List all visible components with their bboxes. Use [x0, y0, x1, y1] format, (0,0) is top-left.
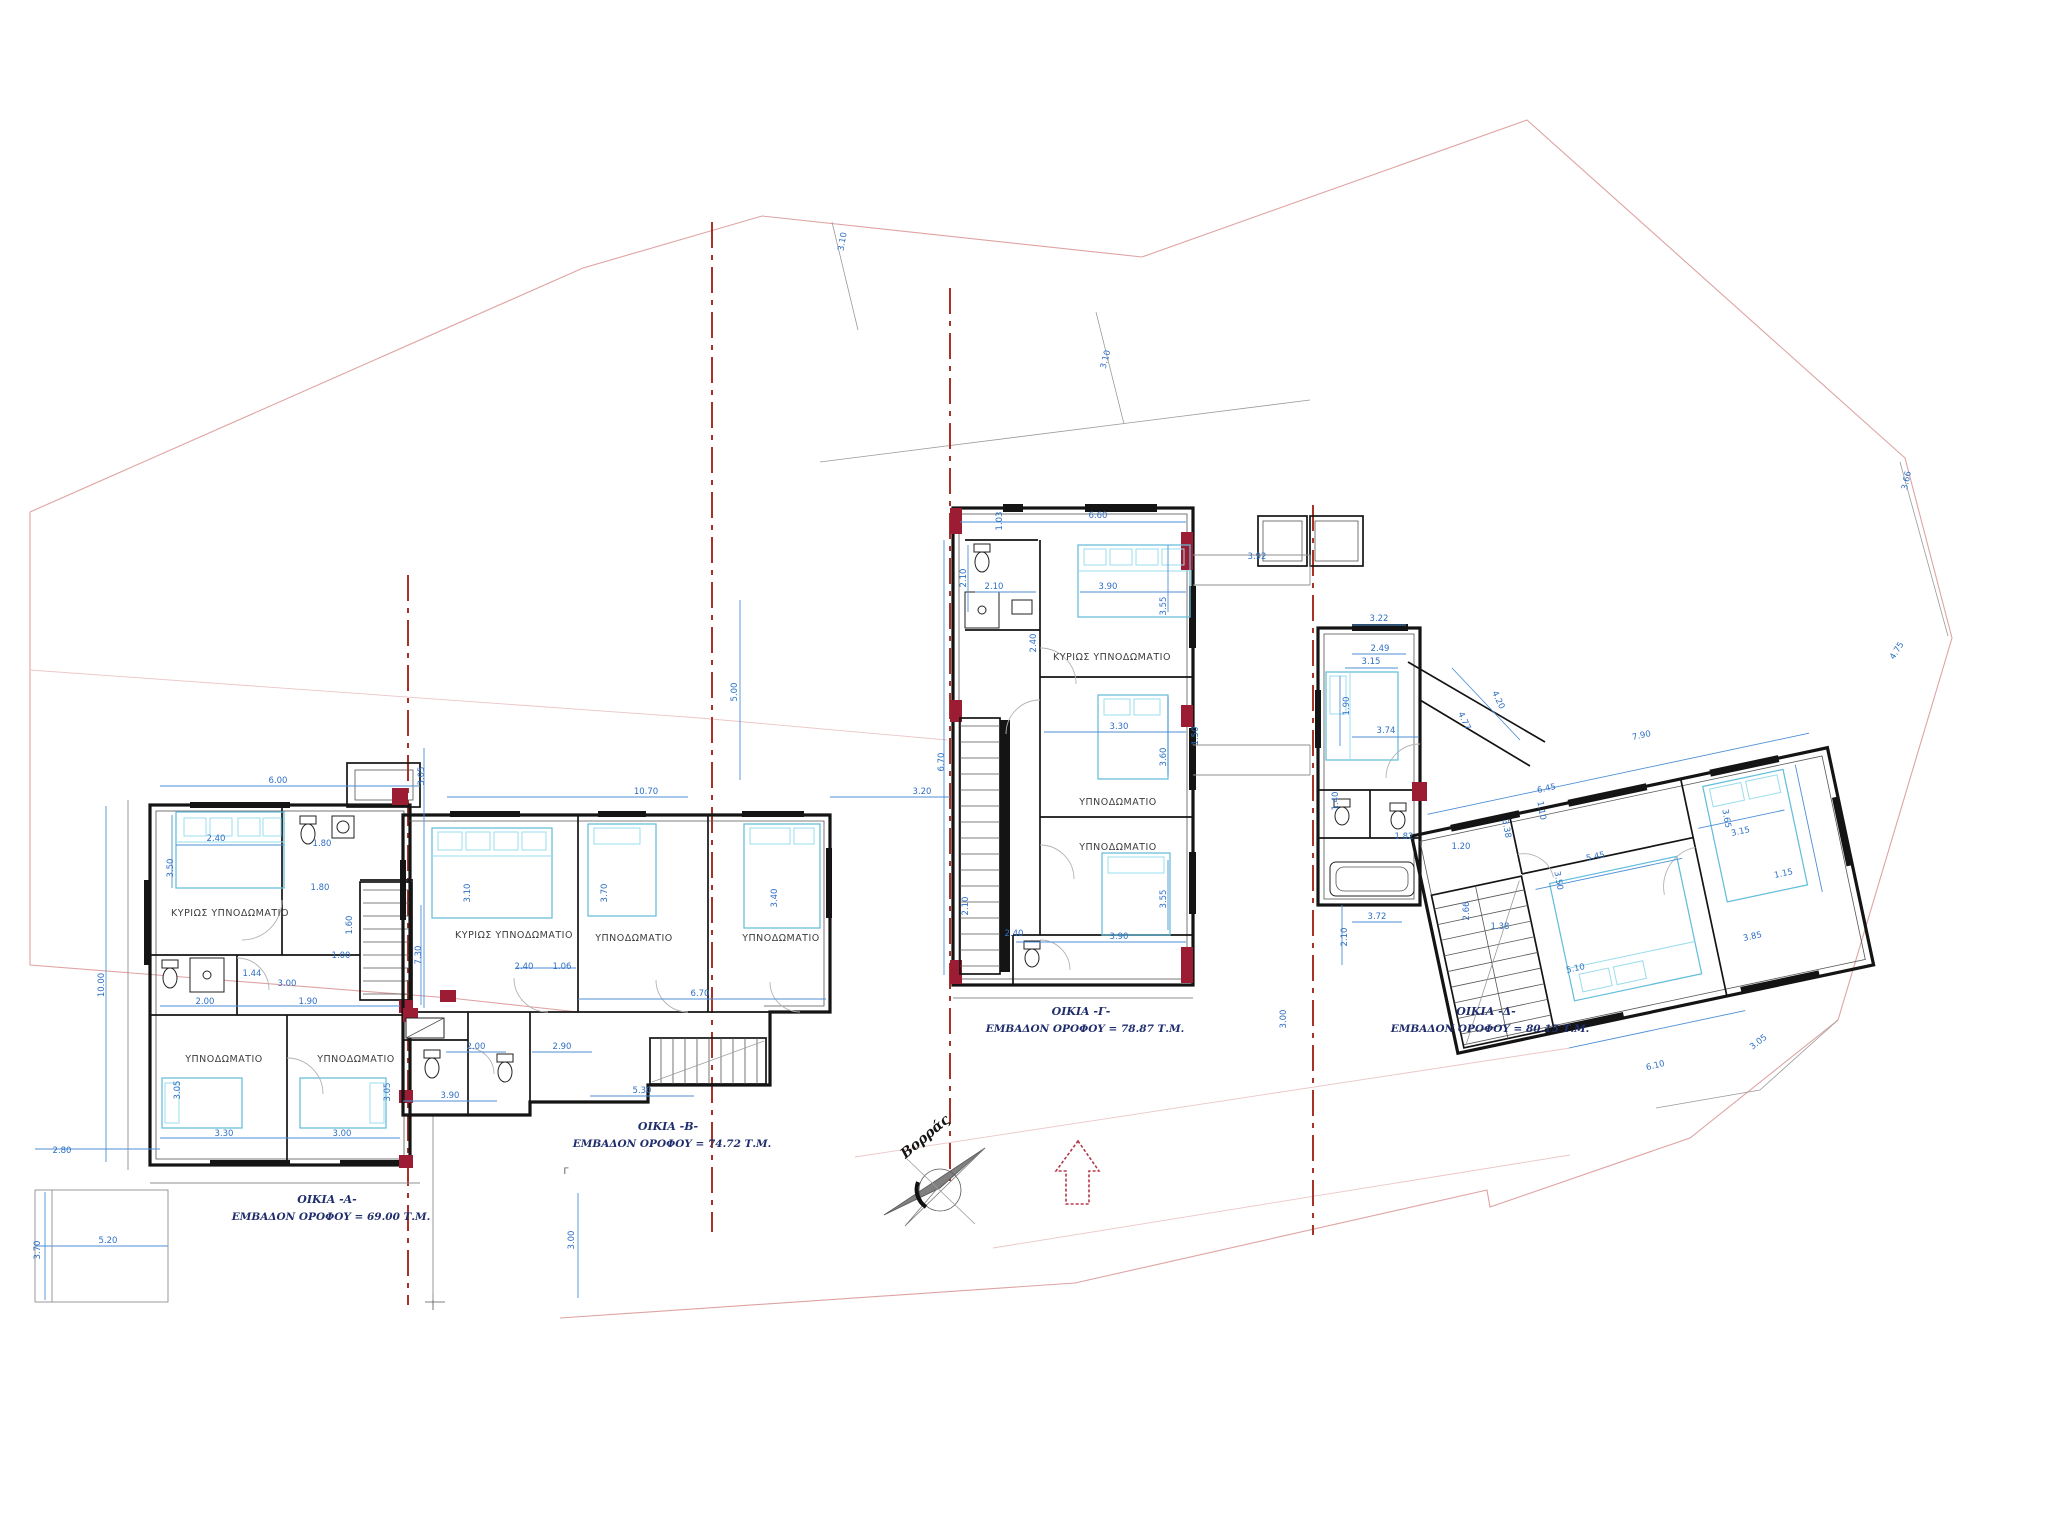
- dimension-label: 3.55: [1159, 890, 1169, 909]
- toilet-fixture: [1390, 803, 1406, 829]
- dimension-label: 3.30: [1110, 722, 1129, 732]
- dimension-label: 3.55: [1159, 597, 1169, 616]
- dimension-label: 2.80: [53, 1146, 72, 1156]
- compass-label-group: Βορράς: [897, 1112, 954, 1163]
- dimension-label: 1.80: [313, 839, 332, 849]
- dimension-label: 3.20: [913, 787, 932, 797]
- house-area-label: ΕΜΒΑΔΟΝ ΟΡΟΦΟΥ = 78.87 Τ.Μ.: [985, 1023, 1185, 1035]
- compass-label: Βορράς: [897, 1112, 954, 1163]
- dimension-label: 1.40: [1331, 792, 1341, 811]
- dimension-label: 1.80: [311, 883, 330, 893]
- section-marks: Γ: [563, 1167, 568, 1177]
- room-label: ΚΥΡΙΩΣ ΥΠΝΟΔΩΜΑΤΙΟ: [1053, 652, 1171, 663]
- house-area-label: ΕΜΒΑΔΟΝ ΟΡΟΦΟΥ = 80.15 Τ.Μ.: [1390, 1023, 1590, 1035]
- dimension-label: 2.40: [207, 834, 226, 844]
- dimension-label: 3.66: [1900, 470, 1914, 491]
- sink-fixture: [1012, 600, 1032, 614]
- dimension-label: 3.00: [278, 979, 297, 989]
- bed-single: [588, 824, 656, 916]
- room-label: ΥΠΝΟΔΩΜΑΤΙΟ: [1078, 842, 1157, 853]
- bed-double: [1078, 545, 1190, 617]
- dimension-label: 3.30: [215, 1129, 234, 1139]
- dimension-label: 2.00: [467, 1042, 486, 1052]
- room-label: ΥΠΝΟΔΩΜΑΤΙΟ: [1078, 797, 1157, 808]
- north-arrow-icon: [1056, 1141, 1099, 1204]
- house-title: ΟΙΚΙΑ -Γ-: [1052, 1005, 1111, 1018]
- dimension-label: 3.85: [1742, 930, 1763, 944]
- dimension-label: 2.49: [1371, 644, 1390, 654]
- dimension-label: 1.15: [1773, 867, 1794, 881]
- sink-fixture: [332, 816, 354, 838]
- toilet-fixture: [424, 1050, 440, 1078]
- dimension-label: 1.06: [553, 962, 572, 972]
- toilet-fixture: [974, 544, 990, 572]
- dimension-label: 3.05: [1748, 1033, 1769, 1053]
- dimension-label: 3.90: [1099, 582, 1118, 592]
- dimension-label: 5.20: [99, 1236, 118, 1246]
- dimension-label: 4.77: [1455, 710, 1472, 731]
- dimension-label: 1.90: [299, 997, 318, 1007]
- dimension-label: 1.20: [1452, 842, 1471, 852]
- dimension-label: 10.00: [97, 973, 107, 997]
- dimension-label: 2.10: [985, 582, 1004, 592]
- shower-fixture: [965, 592, 999, 628]
- dimension-label: 3.10: [1099, 349, 1114, 370]
- dimension-label: 3.50: [166, 859, 176, 878]
- bathtub-fixture: [1330, 862, 1414, 896]
- dimension-label: 3.40: [770, 889, 780, 908]
- bed-single: [300, 1078, 386, 1128]
- dimension-label: 2.40: [515, 962, 534, 972]
- dimension-label: 3.38: [1499, 818, 1512, 838]
- dimension-label: 2.40: [1005, 929, 1024, 939]
- dimension-label: 2.10: [959, 569, 969, 588]
- bed-double: [176, 812, 284, 888]
- house-b-plan: [392, 748, 950, 1298]
- floor-plan-sheet: 6.002.403.501.801.801.601.443.001.0010.0…: [0, 0, 2048, 1536]
- dimension-label: 1.03: [995, 512, 1005, 531]
- room-label: ΚΥΡΙΩΣ ΥΠΝΟΔΩΜΑΤΙΟ: [171, 908, 289, 919]
- shower-fixture: [406, 1018, 444, 1038]
- house-title: ΟΙΚΙΑ -Δ-: [1456, 1005, 1516, 1018]
- dimension-label: 5.00: [730, 683, 740, 702]
- dimension-label: 3.00: [333, 1129, 352, 1139]
- room-labels: ΚΥΡΙΩΣ ΥΠΝΟΔΩΜΑΤΙΟΥΠΝΟΔΩΜΑΤΙΟΥΠΝΟΔΩΜΑΤΙΟ…: [171, 652, 1171, 1065]
- dimension-label: 3.60: [1159, 748, 1169, 767]
- dimension-label: 3.92: [1248, 552, 1267, 562]
- dimension-label: 3.90: [441, 1091, 460, 1101]
- house-area-label: ΕΜΒΑΔΟΝ ΟΡΟΦΟΥ = 69.00 Τ.Μ.: [231, 1211, 431, 1223]
- dimension-label: 3.50: [1551, 870, 1564, 890]
- dimension-label: 3.15: [1730, 825, 1751, 839]
- dimension-label: 4.75: [1888, 640, 1907, 661]
- dimension-label: 1.60: [345, 916, 355, 935]
- dimension-label: 1.38: [1491, 922, 1510, 932]
- house-delta-rotated-wing: [1408, 730, 1878, 1071]
- dimension-label: 6.00: [269, 776, 288, 786]
- dimension-label: 3.15: [1362, 657, 1381, 667]
- dimension-label: 10.70: [634, 787, 658, 797]
- dimension-label: 6.60: [1089, 511, 1108, 521]
- bed-double: [432, 828, 552, 918]
- dimension-label: 3.10: [836, 231, 849, 251]
- dimension-label: 4.20: [1489, 689, 1506, 710]
- dimension-label: 1.50: [1191, 727, 1201, 746]
- shower-fixture: [190, 958, 224, 992]
- dimension-label: 5.30: [633, 1086, 652, 1096]
- compass-needle: [884, 1148, 985, 1215]
- dimension-label: 7.30: [414, 946, 424, 965]
- toilet-fixture: [162, 960, 178, 988]
- section-lines: [408, 222, 1313, 1305]
- dimension-label: 3.90: [1110, 932, 1129, 942]
- dimension-label: 7.90: [1631, 729, 1652, 743]
- toilet-fixture: [1024, 941, 1040, 967]
- dimension-label: 6.70: [937, 753, 947, 772]
- room-label: ΥΠΝΟΔΩΜΑΤΙΟ: [594, 933, 673, 944]
- room-label: ΥΠΝΟΔΩΜΑΤΙΟ: [741, 933, 820, 944]
- dimension-label: 6.10: [1645, 1059, 1666, 1073]
- section-mark-label: Γ: [563, 1167, 568, 1177]
- house-area-label: ΕΜΒΑΔΟΝ ΟΡΟΦΟΥ = 74.72 Τ.Μ.: [572, 1138, 772, 1150]
- dimension-label: 1.82: [1395, 832, 1414, 842]
- room-label: ΥΠΝΟΔΩΜΑΤΙΟ: [184, 1054, 263, 1065]
- room-label: ΥΠΝΟΔΩΜΑΤΙΟ: [316, 1054, 395, 1065]
- dimension-label: 1.10: [1534, 800, 1547, 820]
- north-compass: [884, 1148, 985, 1226]
- dimension-label: 3.00: [567, 1231, 577, 1250]
- bed-single: [1098, 695, 1168, 779]
- dimension-label: 6.45: [1536, 782, 1557, 796]
- house-title: ΟΙΚΙΑ -Α-: [297, 1193, 357, 1206]
- dimension-label: 3.70: [600, 884, 610, 903]
- roof-skylights: [1258, 516, 1363, 566]
- dimension-label: 2.00: [196, 997, 215, 1007]
- toilet-fixture: [497, 1054, 513, 1082]
- dimension-label: 6.70: [691, 989, 710, 999]
- house-title: ΟΙΚΙΑ -Β-: [638, 1120, 699, 1133]
- dimension-label: 1.00: [332, 951, 351, 961]
- dimension-label: 3.00: [1279, 1010, 1289, 1029]
- bed-single: [744, 824, 820, 928]
- dimension-label: 3.72: [1368, 912, 1387, 922]
- dimension-label: 3.05: [383, 1083, 393, 1102]
- dimension-label: 3.05: [417, 767, 427, 786]
- floor-plan-drawing: 6.002.403.501.801.801.601.443.001.0010.0…: [0, 0, 2048, 1536]
- bed-single: [1326, 672, 1398, 760]
- dimension-label: 2.90: [553, 1042, 572, 1052]
- dimension-label: 3.65: [1719, 808, 1732, 828]
- dimension-label: 3.05: [173, 1081, 183, 1100]
- dimension-label: 1.90: [1342, 697, 1352, 716]
- dimension-label: 2.10: [961, 897, 971, 916]
- dimension-label: 2.10: [1340, 928, 1350, 947]
- bed-double: [1550, 856, 1702, 1000]
- dimension-label: 3.70: [33, 1241, 43, 1260]
- dimension-label: 3.10: [463, 884, 473, 903]
- dimension-label: 3.74: [1377, 726, 1396, 736]
- house-gamma-plan: [740, 504, 1310, 998]
- dimension-label: 5.45: [1585, 850, 1606, 864]
- house-delta-plan: [1315, 624, 1878, 1071]
- dimension-label: 2.66: [1462, 902, 1472, 921]
- room-label: ΚΥΡΙΩΣ ΥΠΝΟΔΩΜΑΤΙΟ: [455, 930, 573, 941]
- bed-single: [1703, 769, 1808, 901]
- dimension-label: 1.44: [243, 969, 262, 979]
- dimension-label: 2.40: [1029, 634, 1039, 653]
- dimension-label: 3.22: [1370, 614, 1389, 624]
